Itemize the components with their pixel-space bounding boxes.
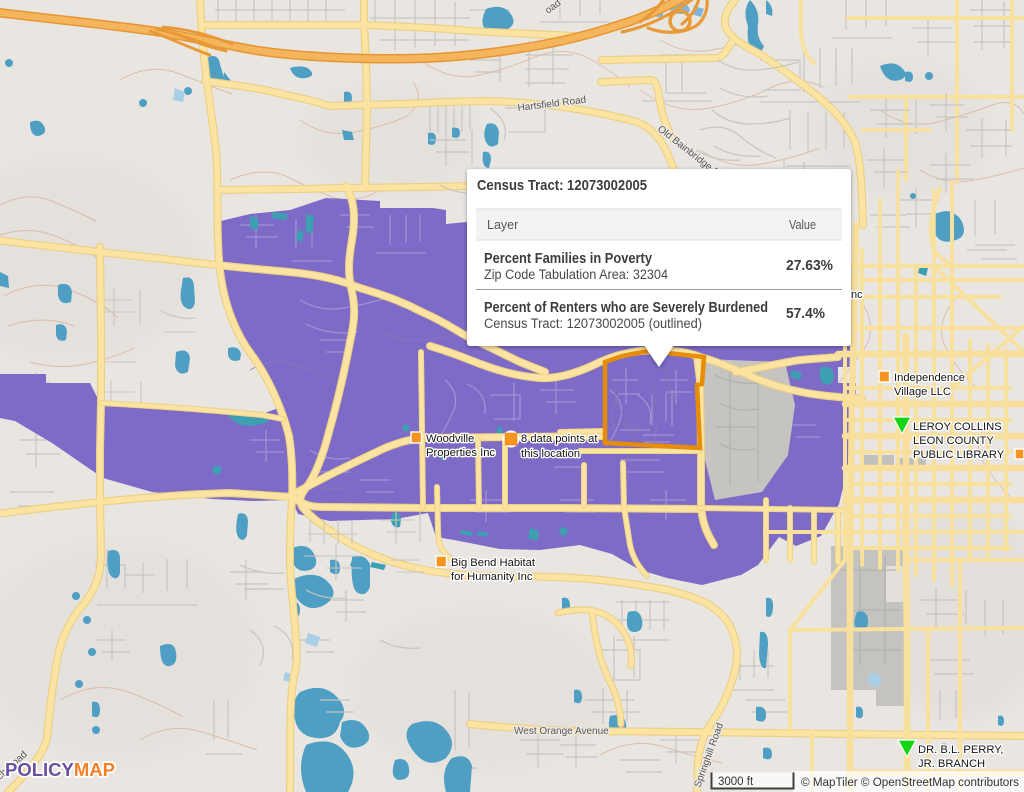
svg-text:POLICYMAP: POLICYMAP	[5, 759, 115, 780]
svg-text:for Humanity Inc: for Humanity Inc	[451, 571, 533, 583]
svg-text:Census Tract: 12073002005 (out: Census Tract: 12073002005 (outlined)	[484, 316, 702, 331]
svg-text:nc: nc	[851, 289, 863, 301]
svg-text:27.63%: 27.63%	[786, 257, 833, 274]
svg-text:Woodville: Woodville	[426, 433, 474, 445]
svg-text:Village LLC: Village LLC	[894, 386, 951, 398]
svg-text:DR. B.L. PERRY,: DR. B.L. PERRY,	[918, 744, 1003, 756]
svg-text:Layer: Layer	[487, 218, 518, 232]
svg-text:Independence: Independence	[894, 372, 965, 384]
svg-text:Value: Value	[789, 218, 816, 232]
svg-text:Properties Inc: Properties Inc	[426, 447, 495, 459]
svg-text:PUBLIC LIBRARY: PUBLIC LIBRARY	[913, 449, 1005, 461]
svg-text:Census Tract: 12073002005: Census Tract: 12073002005	[477, 177, 647, 194]
svg-text:Zip Code Tabulation Area: 3230: Zip Code Tabulation Area: 32304	[484, 267, 668, 282]
svg-text:this location: this location	[521, 448, 580, 460]
svg-text:West Orange Avenue: West Orange Avenue	[514, 726, 609, 737]
svg-text:Percent of Renters who are Sev: Percent of Renters who are Severely Burd…	[484, 300, 768, 316]
svg-text:Big Bend Habitat: Big Bend Habitat	[451, 557, 536, 569]
svg-text:Percent Families in Poverty: Percent Families in Poverty	[484, 251, 652, 267]
svg-text:57.4%: 57.4%	[786, 305, 825, 322]
svg-text:LEON COUNTY: LEON COUNTY	[913, 435, 994, 447]
svg-text:JR. BRANCH: JR. BRANCH	[918, 758, 985, 770]
svg-text:8 data points at: 8 data points at	[521, 433, 598, 445]
svg-text:3000 ft: 3000 ft	[718, 776, 754, 788]
svg-text:LEROY COLLINS: LEROY COLLINS	[913, 421, 1002, 433]
svg-text:© MapTiler © OpenStreetMap con: © MapTiler © OpenStreetMap contributors	[801, 777, 1019, 789]
